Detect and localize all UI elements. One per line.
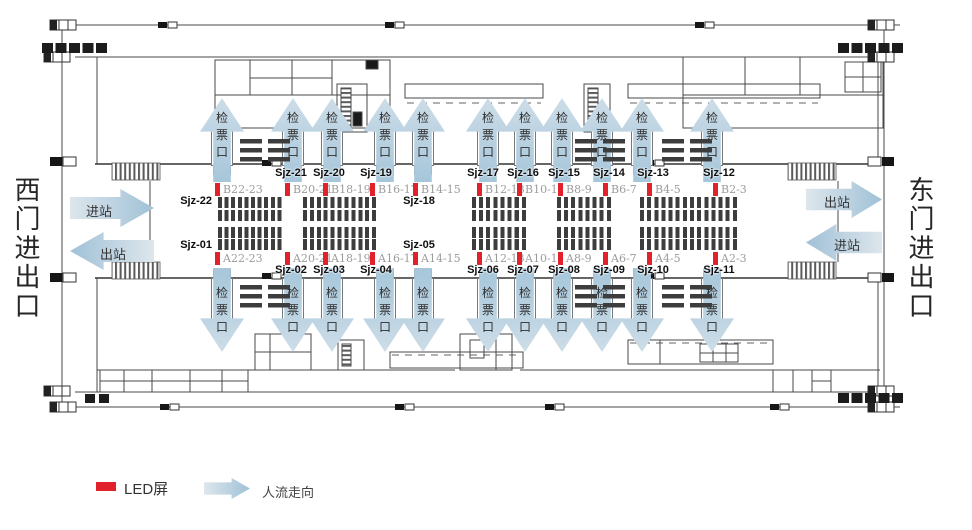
east-exit-flow-label: 出站 — [824, 192, 850, 211]
gate-label-char: 口 — [324, 320, 340, 334]
gate-label-char: 检 — [704, 111, 720, 125]
east-enter-flow-label: 进站 — [834, 235, 860, 254]
led-screen-marker — [603, 183, 608, 196]
bench — [603, 285, 625, 310]
bench — [240, 285, 262, 310]
gate-label-char: 口 — [480, 145, 496, 159]
gate-label-char: 口 — [415, 145, 431, 159]
led-screen-id-label: Sjz-16 — [501, 168, 545, 179]
gate-label-char: 检 — [214, 111, 230, 125]
seat-row — [640, 210, 740, 221]
gate-label-char: 检 — [634, 111, 650, 125]
led-screen-marker — [323, 183, 328, 196]
gate-label-char: 票 — [377, 128, 393, 142]
led-screen-id-label: Sjz-06 — [461, 265, 505, 276]
led-screen-marker — [477, 183, 482, 196]
gate-label-char: 检 — [377, 111, 393, 125]
led-screen-marker — [647, 183, 652, 196]
plan-dynamic-layer: 检票口检票口检票口检票口检票口检票口检票口检票口检票口检票口检票口检票口检票口检… — [0, 0, 972, 530]
gate-label-char: 口 — [594, 320, 610, 334]
gate-label-char: 口 — [554, 145, 570, 159]
led-screen-id-label: Sjz-15 — [542, 168, 586, 179]
platform-label: B18-19 — [331, 184, 371, 196]
gate-label-char: 口 — [704, 320, 720, 334]
gate-label-char: 检 — [517, 111, 533, 125]
gate-label-char: 检 — [285, 111, 301, 125]
legend-flow-label: 人流走向 — [262, 482, 314, 501]
led-screen-id-label: Sjz-22 — [157, 196, 212, 207]
gate-label-char: 票 — [554, 128, 570, 142]
gate-label-char: 口 — [285, 320, 301, 334]
west-enter-flow-label: 进站 — [86, 201, 112, 220]
led-screen-id-label: Sjz-09 — [587, 265, 631, 276]
gate-label-char: 口 — [415, 320, 431, 334]
gate-label-char: 票 — [415, 128, 431, 142]
led-screen-id-label: Sjz-13 — [631, 168, 675, 179]
led-screen-marker — [558, 183, 563, 196]
seat-row — [218, 239, 284, 250]
seat-row — [303, 227, 379, 238]
east-entrance-label: 东门进出口 — [902, 176, 939, 321]
gate-label-char: 检 — [594, 111, 610, 125]
led-screen-id-label: Sjz-01 — [157, 240, 212, 251]
bench — [603, 139, 625, 164]
seat-row — [472, 210, 529, 221]
bench — [575, 139, 597, 164]
led-screen-marker — [215, 252, 220, 265]
seat-row — [557, 239, 614, 250]
bench — [662, 139, 684, 164]
seat-row — [472, 197, 529, 208]
led-screen-id-label: Sjz-04 — [354, 265, 398, 276]
bench — [268, 139, 290, 164]
legend-led-label: LED屏 — [124, 478, 168, 499]
seat-row — [303, 239, 379, 250]
seat-row — [640, 197, 740, 208]
gate-label-char: 检 — [415, 111, 431, 125]
led-screen-id-label: Sjz-10 — [631, 265, 675, 276]
gate-label-char: 口 — [517, 145, 533, 159]
seat-row — [640, 239, 740, 250]
legend-led-swatch — [96, 482, 116, 491]
gate-label-char: 票 — [480, 128, 496, 142]
west-exit-flow-label: 出站 — [100, 244, 126, 263]
gate-label-char: 票 — [554, 303, 570, 317]
gate-label-char: 口 — [554, 320, 570, 334]
seat-row — [557, 197, 614, 208]
led-screen-marker — [517, 183, 522, 196]
gate-label-char: 检 — [517, 286, 533, 300]
gate-label-char: 口 — [324, 145, 340, 159]
seat-row — [303, 210, 379, 221]
seat-row — [218, 197, 284, 208]
led-screen-id-label: Sjz-20 — [307, 168, 351, 179]
gate-label-char: 检 — [415, 286, 431, 300]
gate-label-char: 票 — [324, 128, 340, 142]
platform-label: A22-23 — [223, 253, 263, 265]
gate-label-char: 票 — [214, 303, 230, 317]
gate-label-char: 检 — [324, 286, 340, 300]
led-screen-id-label: Sjz-11 — [697, 265, 741, 276]
gate-label-char: 票 — [214, 128, 230, 142]
gate-label-char: 票 — [377, 303, 393, 317]
led-screen-marker — [215, 183, 220, 196]
gate-label-char: 检 — [554, 286, 570, 300]
gate-label-char: 检 — [554, 111, 570, 125]
platform-label: B8-9 — [566, 184, 592, 196]
led-screen-id-label: Sjz-17 — [461, 168, 505, 179]
station-floor-plan: 检票口检票口检票口检票口检票口检票口检票口检票口检票口检票口检票口检票口检票口检… — [0, 0, 972, 530]
seat-row — [557, 227, 614, 238]
seat-row — [303, 197, 379, 208]
gate-label-char: 检 — [324, 111, 340, 125]
seat-row — [557, 210, 614, 221]
gate-label-char: 检 — [634, 286, 650, 300]
led-screen-marker — [413, 252, 418, 265]
gate-label-char: 票 — [517, 303, 533, 317]
bench — [662, 285, 684, 310]
bench — [240, 139, 262, 164]
gate-label-char: 票 — [324, 303, 340, 317]
west-entrance-label: 西门进出口 — [8, 176, 45, 321]
gate-label-char: 检 — [480, 111, 496, 125]
bench — [690, 139, 712, 164]
gate-label-char: 口 — [214, 145, 230, 159]
led-screen-marker — [285, 183, 290, 196]
led-screen-id-label: Sjz-05 — [397, 240, 441, 251]
gate-label-char: 检 — [480, 286, 496, 300]
gate-label-char: 检 — [214, 286, 230, 300]
platform-label: B2-3 — [721, 184, 747, 196]
platform-label: B6-7 — [611, 184, 637, 196]
gate-label-char: 口 — [377, 320, 393, 334]
gate-label-char: 票 — [480, 303, 496, 317]
gate-label-char: 票 — [415, 303, 431, 317]
gate-label-char: 票 — [634, 128, 650, 142]
gate-label-char: 口 — [480, 320, 496, 334]
gate-label-char: 口 — [517, 320, 533, 334]
led-screen-id-label: Sjz-03 — [307, 265, 351, 276]
seat-row — [218, 227, 284, 238]
platform-label: B4-5 — [655, 184, 681, 196]
gate-label-char: 检 — [377, 286, 393, 300]
led-screen-marker — [713, 183, 718, 196]
gate-label-char: 口 — [634, 145, 650, 159]
led-screen-marker — [370, 183, 375, 196]
gate-label-char: 口 — [634, 320, 650, 334]
led-screen-id-label: Sjz-12 — [697, 168, 741, 179]
gate-label-char: 口 — [377, 145, 393, 159]
seat-row — [218, 210, 284, 221]
platform-label: A14-15 — [421, 253, 461, 265]
gate-label-char: 票 — [517, 128, 533, 142]
bench — [690, 285, 712, 310]
platform-label: B22-23 — [223, 184, 263, 196]
bench — [575, 285, 597, 310]
bench — [268, 285, 290, 310]
led-screen-id-label: Sjz-14 — [587, 168, 631, 179]
gate-label-char: 票 — [634, 303, 650, 317]
led-screen-id-label: Sjz-07 — [501, 265, 545, 276]
seat-row — [472, 239, 529, 250]
led-screen-id-label: Sjz-18 — [397, 196, 441, 207]
seat-row — [472, 227, 529, 238]
seat-row — [640, 227, 740, 238]
led-screen-id-label: Sjz-08 — [542, 265, 586, 276]
gate-label-char: 口 — [214, 320, 230, 334]
led-screen-id-label: Sjz-19 — [354, 168, 398, 179]
